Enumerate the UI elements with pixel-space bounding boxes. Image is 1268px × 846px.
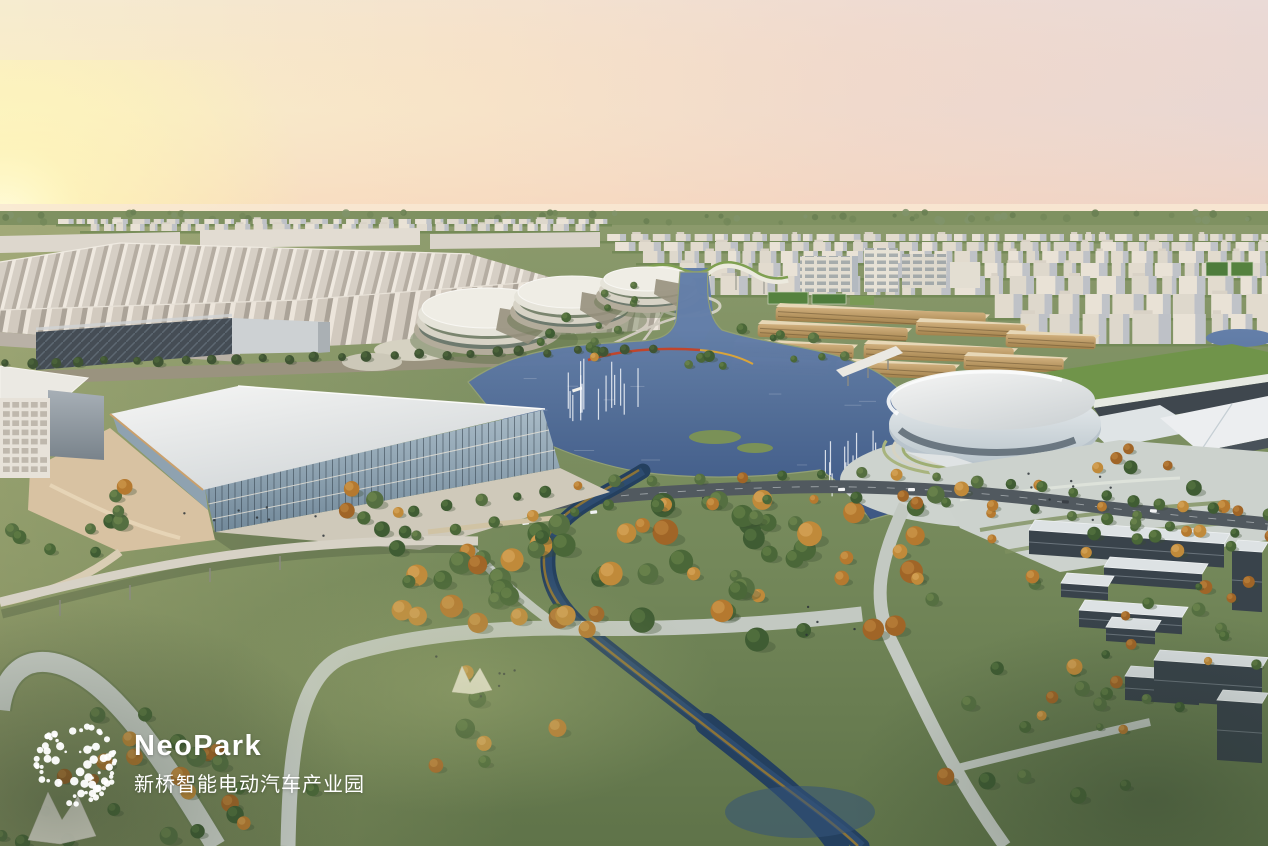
- screenshot-root: NeoPark 新桥智能电动汽车产业园: [0, 0, 1268, 846]
- brand-logo: NeoPark 新桥智能电动汽车产业园: [30, 718, 365, 810]
- logo-title: NeoPark: [134, 731, 365, 761]
- dot-sphere-logo-icon: [30, 718, 122, 810]
- logo-subtitle: 新桥智能电动汽车产业园: [134, 768, 365, 797]
